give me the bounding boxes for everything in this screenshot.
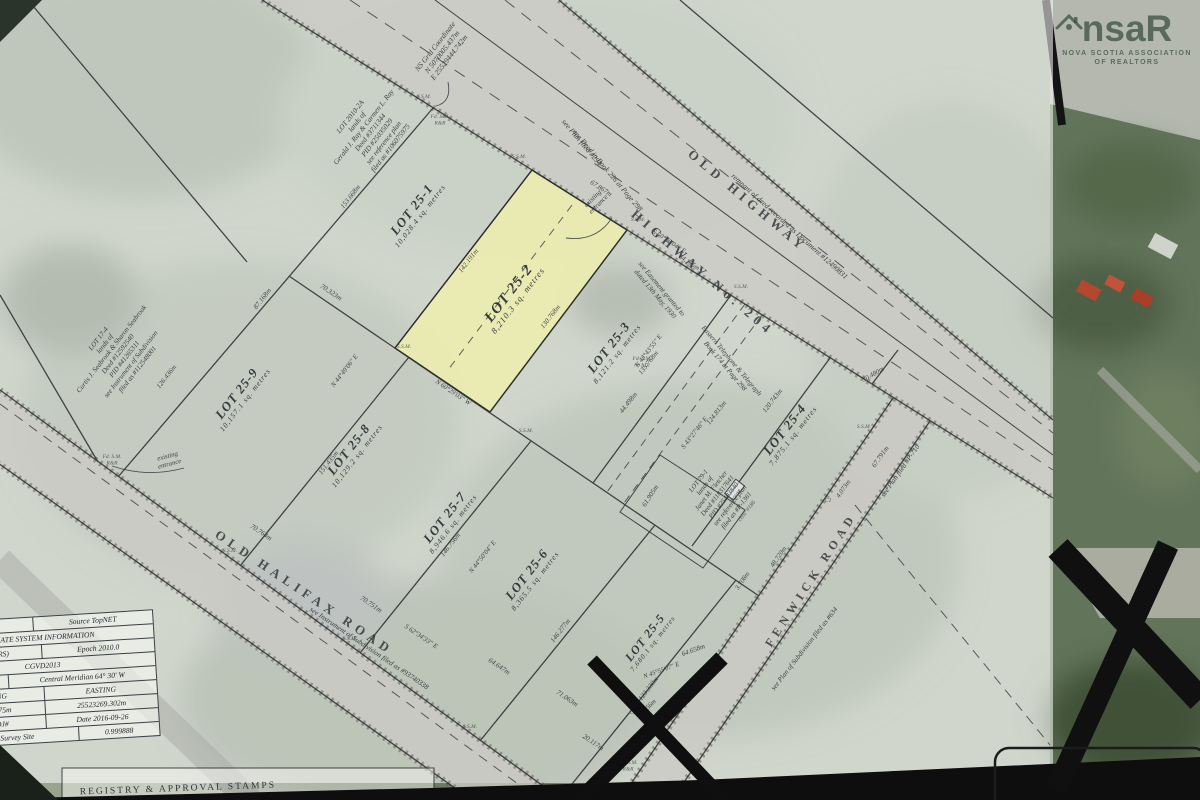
mon-label: S.S.M. <box>417 94 431 100</box>
mon-label: S.S.M. <box>463 724 477 730</box>
plan-canvas: LOT 25-110,028.4 sq. metresLOT 25-28,210… <box>0 0 1200 800</box>
mon-label: S.S.M. <box>519 428 533 434</box>
mon-label: S.S.M. <box>397 344 411 350</box>
logo-subtitle-1: NOVA SCOTIA ASSOCIATION <box>1062 49 1192 58</box>
mon-label: C1 <box>824 498 831 504</box>
coordinate-system-table: pe : NRTKSource TopNETDINATE SYSTEM INFO… <box>0 609 161 750</box>
nsar-logo: ns aR NOVA SCOTIA ASSOCIATION OF REALTOR… <box>1054 10 1200 67</box>
survey-plan-screenshot: LOT 25-110,028.4 sq. metresLOT 25-28,210… <box>0 0 1200 800</box>
mon-label: S.S.M. <box>734 284 748 290</box>
mon-label: S.S.M. <box>512 154 526 160</box>
mon-label: S.S.M. <box>631 217 645 223</box>
logo-text-ar: aR <box>1125 10 1172 47</box>
logo-subtitle-2: OF REALTORS <box>1062 58 1192 67</box>
mon-label: S.S.M. <box>343 636 357 642</box>
mon-label: Fd. S.M.no I.D. <box>632 356 652 368</box>
logo-text-ns: ns <box>1082 10 1125 47</box>
mon-label: S.S.M. <box>857 424 871 430</box>
house-icon <box>1054 10 1084 40</box>
mon-label: S.S.M. <box>223 548 237 554</box>
